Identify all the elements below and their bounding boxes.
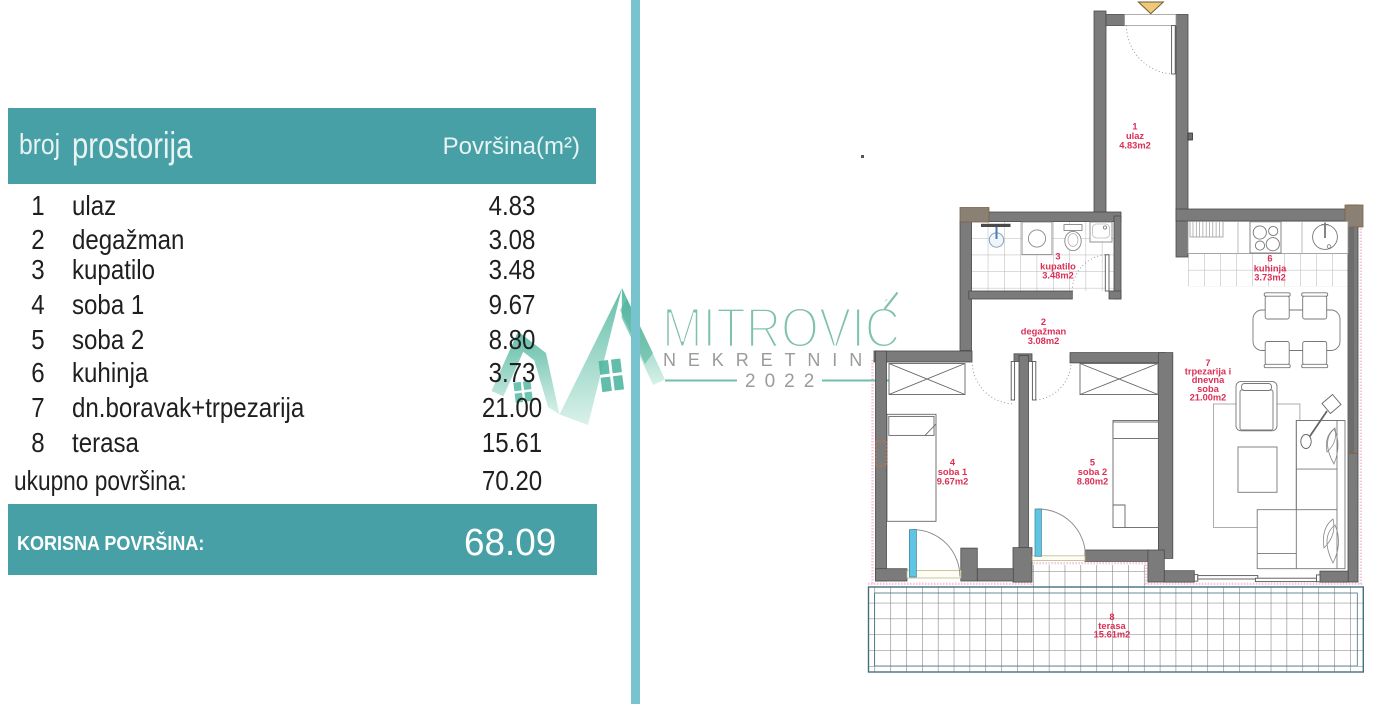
svg-text:4.83m2: 4.83m2 xyxy=(1119,141,1151,151)
svg-text:15.61m2: 15.61m2 xyxy=(1094,630,1131,640)
svg-text:3.73m2: 3.73m2 xyxy=(1254,273,1286,283)
svg-text:soba 1: soba 1 xyxy=(938,467,967,477)
svg-text:ulaz: ulaz xyxy=(1126,131,1144,141)
svg-text:21.00m2: 21.00m2 xyxy=(1190,392,1227,402)
svg-text:2022: 2022 xyxy=(745,371,823,392)
svg-text:1: 1 xyxy=(1132,122,1137,132)
svg-text:3.48m2: 3.48m2 xyxy=(1042,271,1074,281)
svg-text:3: 3 xyxy=(1055,252,1060,262)
svg-text:4: 4 xyxy=(950,457,956,467)
svg-text:soba 2: soba 2 xyxy=(1078,467,1107,477)
svg-text:3.08m2: 3.08m2 xyxy=(1028,336,1060,346)
svg-text:NEKRETNINE: NEKRETNINE xyxy=(663,350,898,370)
svg-text:6: 6 xyxy=(1267,254,1272,264)
svg-text:5: 5 xyxy=(1090,457,1095,467)
svg-text:9.67m2: 9.67m2 xyxy=(937,477,969,487)
svg-text:degažman: degažman xyxy=(1021,327,1067,337)
svg-text:8.80m2: 8.80m2 xyxy=(1077,477,1109,487)
svg-text:2: 2 xyxy=(1041,317,1046,327)
